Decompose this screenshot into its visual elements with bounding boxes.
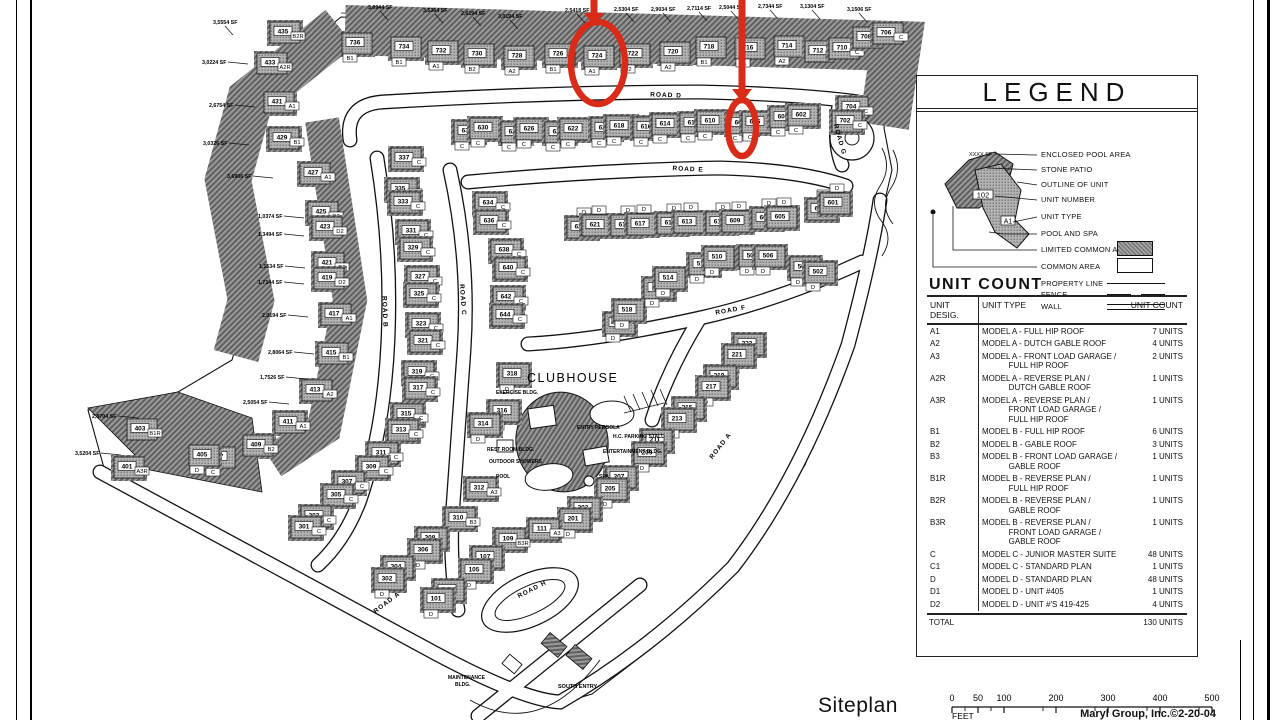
unit-block-411: 411A1 xyxy=(272,410,310,436)
svg-text:2,5304 SF: 2,5304 SF xyxy=(614,7,639,13)
row-type: MODEL D - UNIT #'S 419-425 xyxy=(979,598,1123,611)
unit-type: C xyxy=(507,145,511,151)
unit-number: 317 xyxy=(413,385,424,392)
legend-item-label: COMMON AREA xyxy=(1041,262,1100,271)
scale-tick-label: 50 xyxy=(973,693,983,703)
unit-number: 333 xyxy=(398,199,409,206)
svg-text:2,7114 SF: 2,7114 SF xyxy=(687,6,712,12)
site-label: MAINTENANCE xyxy=(448,675,486,681)
unit-type: B1 xyxy=(395,60,402,66)
unit-number: 642 xyxy=(501,294,512,301)
row-desig: B3R xyxy=(927,517,979,549)
row-type: MODEL B - GABLE ROOF xyxy=(979,438,1123,451)
unit-type: A2 xyxy=(664,65,671,71)
unit-number: 325 xyxy=(414,291,425,298)
sf-label: 2,7344 SF xyxy=(758,4,783,19)
unit-type: C xyxy=(686,136,690,142)
unit-block-636: 636C xyxy=(473,209,511,235)
svg-text:2,7344 SF: 2,7344 SF xyxy=(758,4,783,10)
legend-swatch-line-solid xyxy=(1107,283,1165,284)
unit-count-row-D1: D1MODEL D - UNIT #4051 UNITS xyxy=(927,586,1187,599)
legend-sample-unit-type: A1 xyxy=(1004,219,1013,226)
unit-block-427: 427A1 xyxy=(297,161,335,187)
sf-label: 2,8064 SF xyxy=(268,350,314,356)
legend-item-label: POOL AND SPA xyxy=(1041,229,1098,238)
unit-type: C xyxy=(899,35,903,41)
scale-tick-label: 0 xyxy=(949,693,954,703)
unit-block-431: 431A1 xyxy=(261,90,299,116)
unit-type: B3R xyxy=(517,541,528,547)
unit-type: B2R xyxy=(292,34,303,40)
unit-number: 423 xyxy=(320,224,331,231)
unit-number: 425 xyxy=(316,209,327,216)
row-desig: B1R xyxy=(927,473,979,495)
unit-number: 617 xyxy=(635,221,646,228)
svg-text:2,8704 SF: 2,8704 SF xyxy=(92,414,117,420)
row-desig: A3 xyxy=(927,350,979,372)
unit-type: C xyxy=(776,130,780,136)
row-type: MODEL C - JUNIOR MASTER SUITE xyxy=(979,548,1123,561)
legend-title: LEGEND xyxy=(917,76,1197,109)
legend-item-label: STONE PATIO xyxy=(1041,165,1092,174)
row-desig: A3R xyxy=(927,394,979,426)
unit-count-row-A1: A1MODEL A - FULL HIP ROOF7 UNITS xyxy=(927,325,1187,338)
row-count: 4 UNITS xyxy=(1123,338,1187,351)
unit-type: D xyxy=(380,592,384,598)
unit-number: 618 xyxy=(614,123,625,130)
unit-block-111: 111A3 xyxy=(526,517,564,543)
unit-type: D xyxy=(195,468,199,474)
unit-block-301: 301C xyxy=(288,515,326,541)
unit-number: 736 xyxy=(350,40,361,47)
row-type: MODEL A - FULL HIP ROOF xyxy=(979,325,1123,338)
unit-type: D xyxy=(811,285,815,291)
unit-number: 305 xyxy=(331,492,342,499)
unit-type: D xyxy=(745,269,749,275)
svg-text:2,6754 SF: 2,6754 SF xyxy=(209,103,234,109)
unit-block-401: 401A3R xyxy=(111,455,149,481)
unit-count-table: UNIT DESIG. UNIT TYPE UNIT COUNT A1MODEL… xyxy=(927,295,1187,630)
scan-border-left-inner xyxy=(30,0,32,720)
scan-border-right-inner xyxy=(1253,0,1254,720)
row-count: 7 UNITS xyxy=(1123,325,1187,338)
row-count: 3 UNITS xyxy=(1123,438,1187,451)
unit-block-325: 325C xyxy=(403,282,441,308)
unit-number: 621 xyxy=(590,222,601,229)
svg-text:3,1304 SF: 3,1304 SF xyxy=(800,4,825,10)
row-desig: C1 xyxy=(927,561,979,574)
site-label: H.C. PARKING STALL xyxy=(613,434,664,440)
row-type: MODEL A - REVERSE PLAN / DUTCH GABLE ROO… xyxy=(979,372,1123,394)
road-label: ROAD B xyxy=(380,296,388,328)
credit-text: Maryl Group, Inc.©2-20-04 xyxy=(1020,708,1216,720)
unit-number: 221 xyxy=(732,352,743,359)
unit-block-728: 728A2 xyxy=(501,44,537,75)
row-type: MODEL B - REVERSE PLAN / GABLE ROOF xyxy=(979,495,1123,517)
unit-type: C xyxy=(211,470,215,476)
unit-number: 734 xyxy=(399,44,410,51)
unit-number: 302 xyxy=(382,576,393,583)
unit-number: 626 xyxy=(524,126,535,133)
sf-label: 3,0224 SF xyxy=(202,60,248,66)
unit-type: C xyxy=(384,469,388,475)
unit-block-433: 433A2R xyxy=(254,51,292,77)
sf-label: 3,6906 SF xyxy=(227,174,273,180)
row-type: MODEL B - REVERSE PLAN / FULL HIP ROOF xyxy=(979,473,1123,495)
scale-tick-label: 200 xyxy=(1048,693,1063,703)
unit-number: 720 xyxy=(668,49,679,56)
unit-number: 405 xyxy=(197,452,208,459)
unit-block-622: 622C xyxy=(557,117,593,148)
unit-type: C xyxy=(476,141,480,147)
svg-text:3,6906 SF: 3,6906 SF xyxy=(227,174,252,180)
unit-type: C xyxy=(518,317,522,323)
unit-block-403: 403B1R xyxy=(124,417,162,443)
row-count: 1 UNITS xyxy=(1123,473,1187,495)
row-count: 1 UNITS xyxy=(1123,586,1187,599)
column-header-type: UNIT TYPE xyxy=(979,297,1123,323)
unit-number: 433 xyxy=(265,60,276,67)
svg-text:3,0944 SF: 3,0944 SF xyxy=(368,5,393,11)
unit-block-510: 510D xyxy=(701,245,737,276)
unit-block-429: 429B1 xyxy=(266,126,304,152)
unit-type: D xyxy=(603,502,607,508)
svg-text:2,6194 SF: 2,6194 SF xyxy=(461,11,486,17)
unit-number: 605 xyxy=(775,214,786,221)
unit-number: 518 xyxy=(622,307,633,314)
unit-type: C xyxy=(460,144,464,150)
scan-border-left-outer xyxy=(16,0,17,720)
unit-number: 337 xyxy=(399,155,410,162)
unit-type: D xyxy=(695,277,699,283)
unit-number: 712 xyxy=(813,48,824,55)
unit-number: 318 xyxy=(507,371,518,378)
unit-block-644: 644C xyxy=(489,303,527,329)
unit-number: 312 xyxy=(474,485,485,492)
unit-type: A2R xyxy=(279,65,290,71)
unit-type: D xyxy=(661,291,665,297)
row-type: MODEL B - FRONT LOAD GARAGE / GABLE ROOF xyxy=(979,451,1123,473)
legend-item-label: OUTLINE OF UNIT xyxy=(1041,180,1109,189)
unit-block-413: 413A2 xyxy=(299,378,337,404)
unit-number: 403 xyxy=(135,426,146,433)
unit-block-640: 640C xyxy=(492,256,530,282)
unit-type: C xyxy=(414,432,418,438)
unit-number: 726 xyxy=(553,51,564,58)
unit-number: 306 xyxy=(418,547,429,554)
unit-number: 722 xyxy=(628,51,639,58)
sf-label: 2,0194 SF xyxy=(262,313,308,319)
unit-type: C xyxy=(431,390,435,396)
legend-sample-unit-number: 102 xyxy=(977,191,990,200)
unit-count-row-D2: D2MODEL D - UNIT #'S 419-4254 UNITS xyxy=(927,598,1187,611)
unit-type: C xyxy=(858,123,862,129)
unit-block-419: 419D2 xyxy=(311,266,349,292)
unit-type: A1 xyxy=(432,64,439,70)
unit-number: 315 xyxy=(401,411,412,418)
unit-number: 109 xyxy=(503,536,514,543)
unit-type: C xyxy=(733,136,737,142)
row-count: 6 UNITS xyxy=(1123,426,1187,439)
site-label: REST ROOM BLDG. xyxy=(487,447,535,453)
site-label: EXERCISE BLDG. xyxy=(496,390,539,396)
unit-type: C xyxy=(639,140,643,146)
row-count: 1 UNITS xyxy=(1123,451,1187,473)
unit-number: 409 xyxy=(251,442,262,449)
sf-label: 1,3494 SF xyxy=(258,232,304,238)
unit-type: A2 xyxy=(778,59,785,65)
unit-number: 415 xyxy=(326,350,337,357)
unit-number: 710 xyxy=(837,45,848,52)
unit-count-row-A2R: A2RMODEL A - REVERSE PLAN / DUTCH GABLE … xyxy=(927,372,1187,394)
unit-type: C xyxy=(327,518,331,524)
unit-block-423: 423D2 xyxy=(309,215,347,241)
row-type: MODEL B - FULL HIP ROOF xyxy=(979,426,1123,439)
unit-type: D2 xyxy=(338,280,345,286)
sf-label: 1,0374 SF xyxy=(258,214,304,220)
unit-number: 411 xyxy=(283,419,294,426)
unit-type: C xyxy=(612,139,616,145)
unit-type: C xyxy=(794,128,798,134)
unit-type: C xyxy=(394,455,398,461)
unit-type: C xyxy=(317,529,321,535)
unit-count-total-row: TOTAL 130 UNITS xyxy=(927,613,1187,630)
unit-number: 732 xyxy=(436,48,447,55)
unit-number: 217 xyxy=(706,384,717,391)
unit-type: A1 xyxy=(288,104,295,110)
unit-type: D xyxy=(476,437,480,443)
unit-type: C xyxy=(360,484,364,490)
row-desig: B1 xyxy=(927,426,979,439)
unit-type: C xyxy=(855,50,859,56)
unit-block-415: 415B1 xyxy=(315,341,353,367)
unit-count-row-B2R: B2RMODEL B - REVERSE PLAN / GABLE ROOF1 … xyxy=(927,495,1187,517)
unit-type: A1 xyxy=(299,424,306,430)
road-label: ROAD A xyxy=(708,432,733,461)
unit-number: 301 xyxy=(299,524,310,531)
svg-text:2,8064 SF: 2,8064 SF xyxy=(268,350,293,356)
unit-type: A2 xyxy=(326,392,333,398)
unit-type: C xyxy=(432,296,436,302)
unit-number: 614 xyxy=(660,121,671,128)
scale-feet-label: FEET xyxy=(952,711,974,720)
unit-type: C xyxy=(502,223,506,229)
unit-block-417: 417A1 xyxy=(318,302,356,328)
row-type: MODEL D - UNIT #405 xyxy=(979,586,1123,599)
legend-item-label: UNIT NUMBER xyxy=(1041,195,1095,204)
site-label: OUTDOOR SHOWERS xyxy=(489,459,542,465)
unit-count-row-D: DMODEL D - STANDARD PLAN48 UNITS xyxy=(927,573,1187,586)
sf-label: 2,5054 SF xyxy=(243,400,289,406)
unit-number: 636 xyxy=(484,218,495,225)
unit-block-313: 313C xyxy=(385,418,423,444)
total-count: 130 UNITS xyxy=(1123,615,1187,630)
unit-number: 321 xyxy=(418,338,429,345)
row-desig: B3 xyxy=(927,451,979,473)
unit-number: 105 xyxy=(469,567,480,574)
unit-block-502: 502D xyxy=(802,260,838,291)
sf-label: 1,7144 SF xyxy=(258,280,304,286)
site-label: ENTRY PERGOLA xyxy=(577,425,620,431)
sf-label: 3,1304 SF xyxy=(800,4,825,19)
unit-type: A3 xyxy=(553,531,560,537)
unit-block-724: 724A1 xyxy=(581,44,617,75)
unit-block-734: 734B1 xyxy=(388,35,424,66)
site-label: ENTERTAINMENT BLDG. xyxy=(603,449,663,455)
unit-type: A1 xyxy=(345,316,352,322)
unit-type: C xyxy=(551,145,555,151)
unit-number: 313 xyxy=(396,427,407,434)
row-desig: B2R xyxy=(927,495,979,517)
unit-type: C xyxy=(658,137,662,143)
svg-text:1,7526 SF: 1,7526 SF xyxy=(260,375,285,381)
unit-type: A3R xyxy=(136,469,147,475)
unit-count-row-B3R: B3RMODEL B - REVERSE PLAN / FRONT LOAD G… xyxy=(927,517,1187,549)
unit-number: 640 xyxy=(503,265,514,272)
row-desig: C xyxy=(927,548,979,561)
svg-text:1,7144 SF: 1,7144 SF xyxy=(258,280,283,286)
unit-count-row-A2: A2MODEL A - DUTCH GABLE ROOF4 UNITS xyxy=(927,338,1187,351)
legend-swatch-open xyxy=(1117,258,1153,273)
unit-number: 331 xyxy=(406,228,417,235)
unit-number: 510 xyxy=(712,254,723,261)
scan-border-right-short xyxy=(1240,640,1241,720)
unit-block-314: 314D xyxy=(467,412,503,443)
legend-body: 102 A1 XXXX SF ENCLOSED POOL AREASTONE P… xyxy=(917,112,1197,278)
unit-number: 702 xyxy=(840,118,851,125)
unit-type: D xyxy=(710,270,714,276)
unit-number: 601 xyxy=(828,200,839,207)
unit-type: D xyxy=(737,204,741,210)
unit-type: D xyxy=(597,208,601,214)
unit-number: 730 xyxy=(472,51,483,58)
unit-number: 609 xyxy=(730,218,741,225)
unit-type: A1 xyxy=(588,69,595,75)
road-label: ROAD D xyxy=(650,91,682,99)
row-count: 1 UNITS xyxy=(1123,495,1187,517)
site-label: SOUTH ENTRY xyxy=(558,684,598,690)
column-header-count: UNIT COUNT xyxy=(1123,297,1187,323)
site-label: POOL xyxy=(496,474,510,480)
scale-tick-label: 400 xyxy=(1152,693,1167,703)
svg-text:3,5364 SF: 3,5364 SF xyxy=(423,8,448,14)
unit-count-row-B1R: B1RMODEL B - REVERSE PLAN / FULL HIP ROO… xyxy=(927,473,1187,495)
unit-number: 718 xyxy=(704,44,715,51)
unit-block-302: 302D xyxy=(371,567,407,598)
svg-text:3,5204 SF: 3,5204 SF xyxy=(75,451,100,457)
unit-type: C xyxy=(436,343,440,349)
svg-text:1,3494 SF: 1,3494 SF xyxy=(258,232,283,238)
unit-block-321: 321C xyxy=(407,329,445,355)
unit-number: 205 xyxy=(605,486,616,493)
unit-type: B1 xyxy=(342,355,349,361)
unit-block-514: 514D xyxy=(652,266,688,297)
unit-number: 401 xyxy=(122,464,133,471)
unit-block-333: 333C xyxy=(387,190,425,216)
unit-number: 101 xyxy=(431,596,442,603)
unit-number: 201 xyxy=(568,516,579,523)
unit-number: 413 xyxy=(310,387,321,394)
unit-type: D xyxy=(642,207,646,213)
svg-text:3,0194 SF: 3,0194 SF xyxy=(498,14,523,20)
unit-number: 634 xyxy=(483,200,494,207)
total-label: TOTAL xyxy=(927,615,1123,630)
unit-count-row-B2: B2MODEL B - GABLE ROOF3 UNITS xyxy=(927,438,1187,451)
unit-block-630: 630C xyxy=(467,116,503,147)
unit-type: A2 xyxy=(508,69,515,75)
unit-number: 506 xyxy=(763,253,774,260)
unit-block-329: 329C xyxy=(397,236,435,262)
svg-text:1,1534 SF: 1,1534 SF xyxy=(259,264,284,270)
unit-count-row-C: CMODEL C - JUNIOR MASTER SUITE48 UNITS xyxy=(927,548,1187,561)
unit-number: 314 xyxy=(478,421,489,428)
svg-text:2,0194 SF: 2,0194 SF xyxy=(262,313,287,319)
unit-type: C xyxy=(597,141,601,147)
unit-type: C xyxy=(522,142,526,148)
svg-text:2,9034 SF: 2,9034 SF xyxy=(651,7,676,13)
row-type: MODEL A - REVERSE PLAN / FRONT LOAD GARA… xyxy=(979,394,1123,426)
unit-type: B2 xyxy=(468,67,475,73)
unit-type: D xyxy=(620,323,624,329)
unit-count-row-A3R: A3RMODEL A - REVERSE PLAN / FRONT LOAD G… xyxy=(927,394,1187,426)
row-desig: B2 xyxy=(927,438,979,451)
unit-type: C xyxy=(417,160,421,166)
unit-number: 728 xyxy=(512,53,523,60)
unit-number: 419 xyxy=(322,275,333,282)
unit-block-736: 736B1 xyxy=(339,31,375,62)
unit-type: D xyxy=(782,200,786,206)
column-header-desig: UNIT DESIG. xyxy=(927,297,979,323)
scale-tick-label: 300 xyxy=(1100,693,1115,703)
scale-tick-label: 100 xyxy=(996,693,1011,703)
unit-number: 329 xyxy=(408,245,419,252)
unit-type: C xyxy=(521,270,525,276)
unit-block-732: 732A1 xyxy=(425,39,461,70)
scan-border-right-outer xyxy=(1267,0,1270,720)
unit-type: D xyxy=(689,205,693,211)
row-desig: A2 xyxy=(927,338,979,351)
unit-number: 427 xyxy=(308,170,319,177)
unit-number: 724 xyxy=(592,53,603,60)
unit-type: B2 xyxy=(267,447,274,453)
unit-number: 706 xyxy=(881,30,892,37)
unit-type: D xyxy=(761,269,765,275)
unit-type: D xyxy=(416,563,420,569)
unit-block-317: 317C xyxy=(402,376,440,402)
row-count: 1 UNITS xyxy=(1123,372,1187,394)
unit-type: D xyxy=(796,280,800,286)
row-desig: A1 xyxy=(927,325,979,338)
siteplan-document: { "page": { "title_text": "Siteplan", "c… xyxy=(0,0,1280,720)
unit-number: 429 xyxy=(277,135,288,142)
sf-label: 1,1534 SF xyxy=(259,264,305,270)
unit-number: 514 xyxy=(663,275,674,282)
unit-count-title: UNIT COUNT xyxy=(929,276,1043,294)
unit-number: 714 xyxy=(782,43,793,50)
scale-tick-label: 500 xyxy=(1204,693,1219,703)
unit-block-337: 337C xyxy=(388,146,426,172)
unit-type: B1 xyxy=(346,56,353,62)
row-desig: D xyxy=(927,573,979,586)
row-type: MODEL B - REVERSE PLAN / FRONT LOAD GARA… xyxy=(979,517,1123,549)
unit-number: 323 xyxy=(416,321,427,328)
row-type: MODEL A - FRONT LOAD GARAGE / FULL HIP R… xyxy=(979,350,1123,372)
row-desig: D1 xyxy=(927,586,979,599)
site-label: SPA xyxy=(599,474,609,480)
unit-type: D xyxy=(611,336,615,342)
unit-type: C xyxy=(566,142,570,148)
unit-count-header: UNIT DESIG. UNIT TYPE UNIT COUNT xyxy=(927,297,1187,325)
